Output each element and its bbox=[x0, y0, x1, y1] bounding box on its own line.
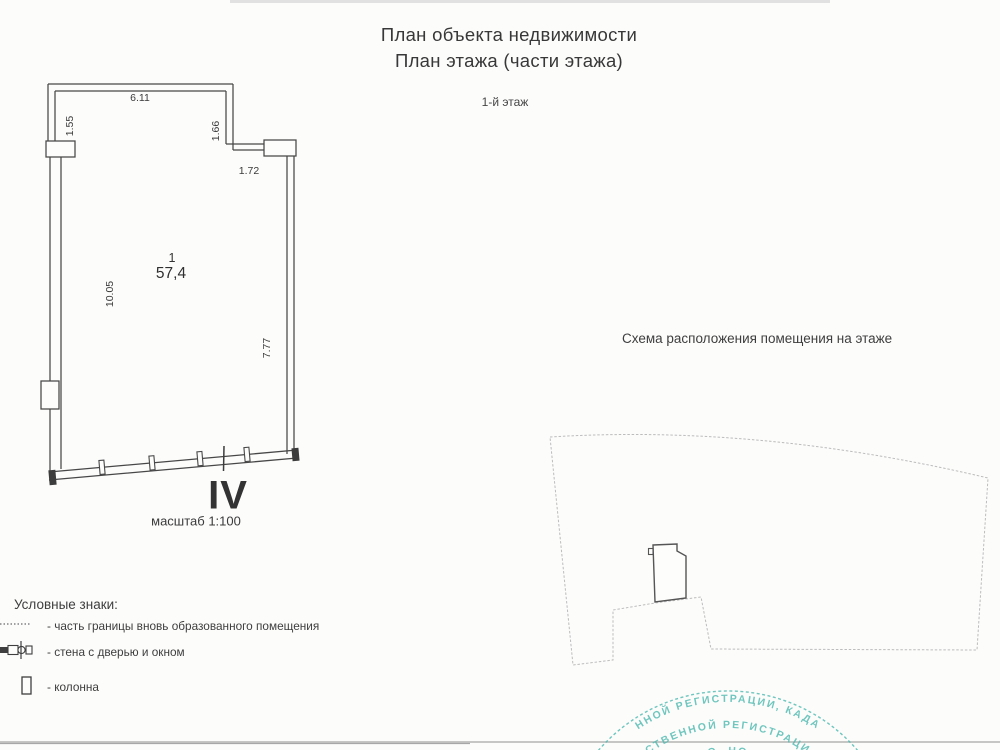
wall-right bbox=[287, 156, 294, 454]
room-area: 57,4 bbox=[156, 265, 186, 283]
wall-endcap bbox=[48, 470, 56, 486]
legend-symbols bbox=[0, 624, 32, 694]
dim-top-width: 6.11 bbox=[130, 92, 150, 104]
window-symbol bbox=[197, 451, 203, 465]
legend-title: Условные знаки: bbox=[14, 597, 118, 612]
column-symbol bbox=[264, 140, 296, 156]
window-symbol bbox=[149, 456, 155, 470]
dim-notch-width: 1.72 bbox=[239, 165, 259, 177]
column-symbol bbox=[41, 381, 59, 409]
floor-label: 1-й этаж bbox=[482, 95, 529, 109]
wall-bottom bbox=[49, 450, 297, 480]
scheme-floor-outline bbox=[550, 434, 988, 665]
dim-right-height: 7.77 bbox=[261, 338, 273, 358]
legend-item-boundary: - часть границы вновь образованного поме… bbox=[47, 619, 319, 633]
drawing-layer: ННОЙ РЕГИСТРАЦИИ, КАДА СТВЕННОЙ РЕГИСТРА… bbox=[0, 0, 1000, 750]
wall-endcap bbox=[291, 448, 299, 462]
floor-plan-drawing bbox=[41, 84, 300, 485]
legend-item-column: - колонна bbox=[47, 680, 99, 694]
document-page: ННОЙ РЕГИСТРАЦИИ, КАДА СТВЕННОЙ РЕГИСТРА… bbox=[0, 0, 1000, 750]
wall-top bbox=[48, 84, 233, 91]
page-title-line1: План объекта недвижимости bbox=[259, 24, 759, 46]
scheme-title: Схема расположения помещения на этаже bbox=[622, 331, 892, 346]
column-icon bbox=[22, 677, 31, 694]
dim-left-upper: 1.55 bbox=[64, 116, 76, 136]
scale-label: масштаб 1:100 bbox=[151, 514, 241, 529]
scheme-room-notch bbox=[649, 549, 654, 555]
section-mark: IV bbox=[208, 474, 248, 519]
room-number: 1 bbox=[169, 251, 176, 265]
scheme-room-outline bbox=[653, 544, 686, 602]
window-symbol bbox=[99, 460, 105, 474]
wall-door-window-icon bbox=[0, 641, 32, 659]
wall-left-upper bbox=[48, 84, 55, 143]
wall-notch bbox=[226, 84, 265, 150]
stamp-text-inner: СТВЕННОЙ РЕГИСТРАЦИ bbox=[643, 718, 813, 750]
boundary-tick bbox=[224, 446, 225, 471]
wall-left-lower bbox=[50, 157, 61, 472]
column-symbol bbox=[46, 141, 75, 157]
registration-stamp: ННОЙ РЕГИСТРАЦИИ, КАДА СТВЕННОЙ РЕГИСТРА… bbox=[591, 691, 864, 750]
dim-notch-height: 1.66 bbox=[210, 121, 222, 141]
legend-item-wall-door-window: - стена с дверью и окном bbox=[47, 645, 185, 659]
stamp-text-bottom: О. НО bbox=[707, 745, 749, 750]
window-symbol bbox=[244, 447, 250, 461]
scheme-drawing bbox=[550, 434, 988, 665]
page-title-line2: План этажа (части этажа) bbox=[259, 50, 759, 72]
dim-left-height: 10.05 bbox=[104, 281, 116, 307]
